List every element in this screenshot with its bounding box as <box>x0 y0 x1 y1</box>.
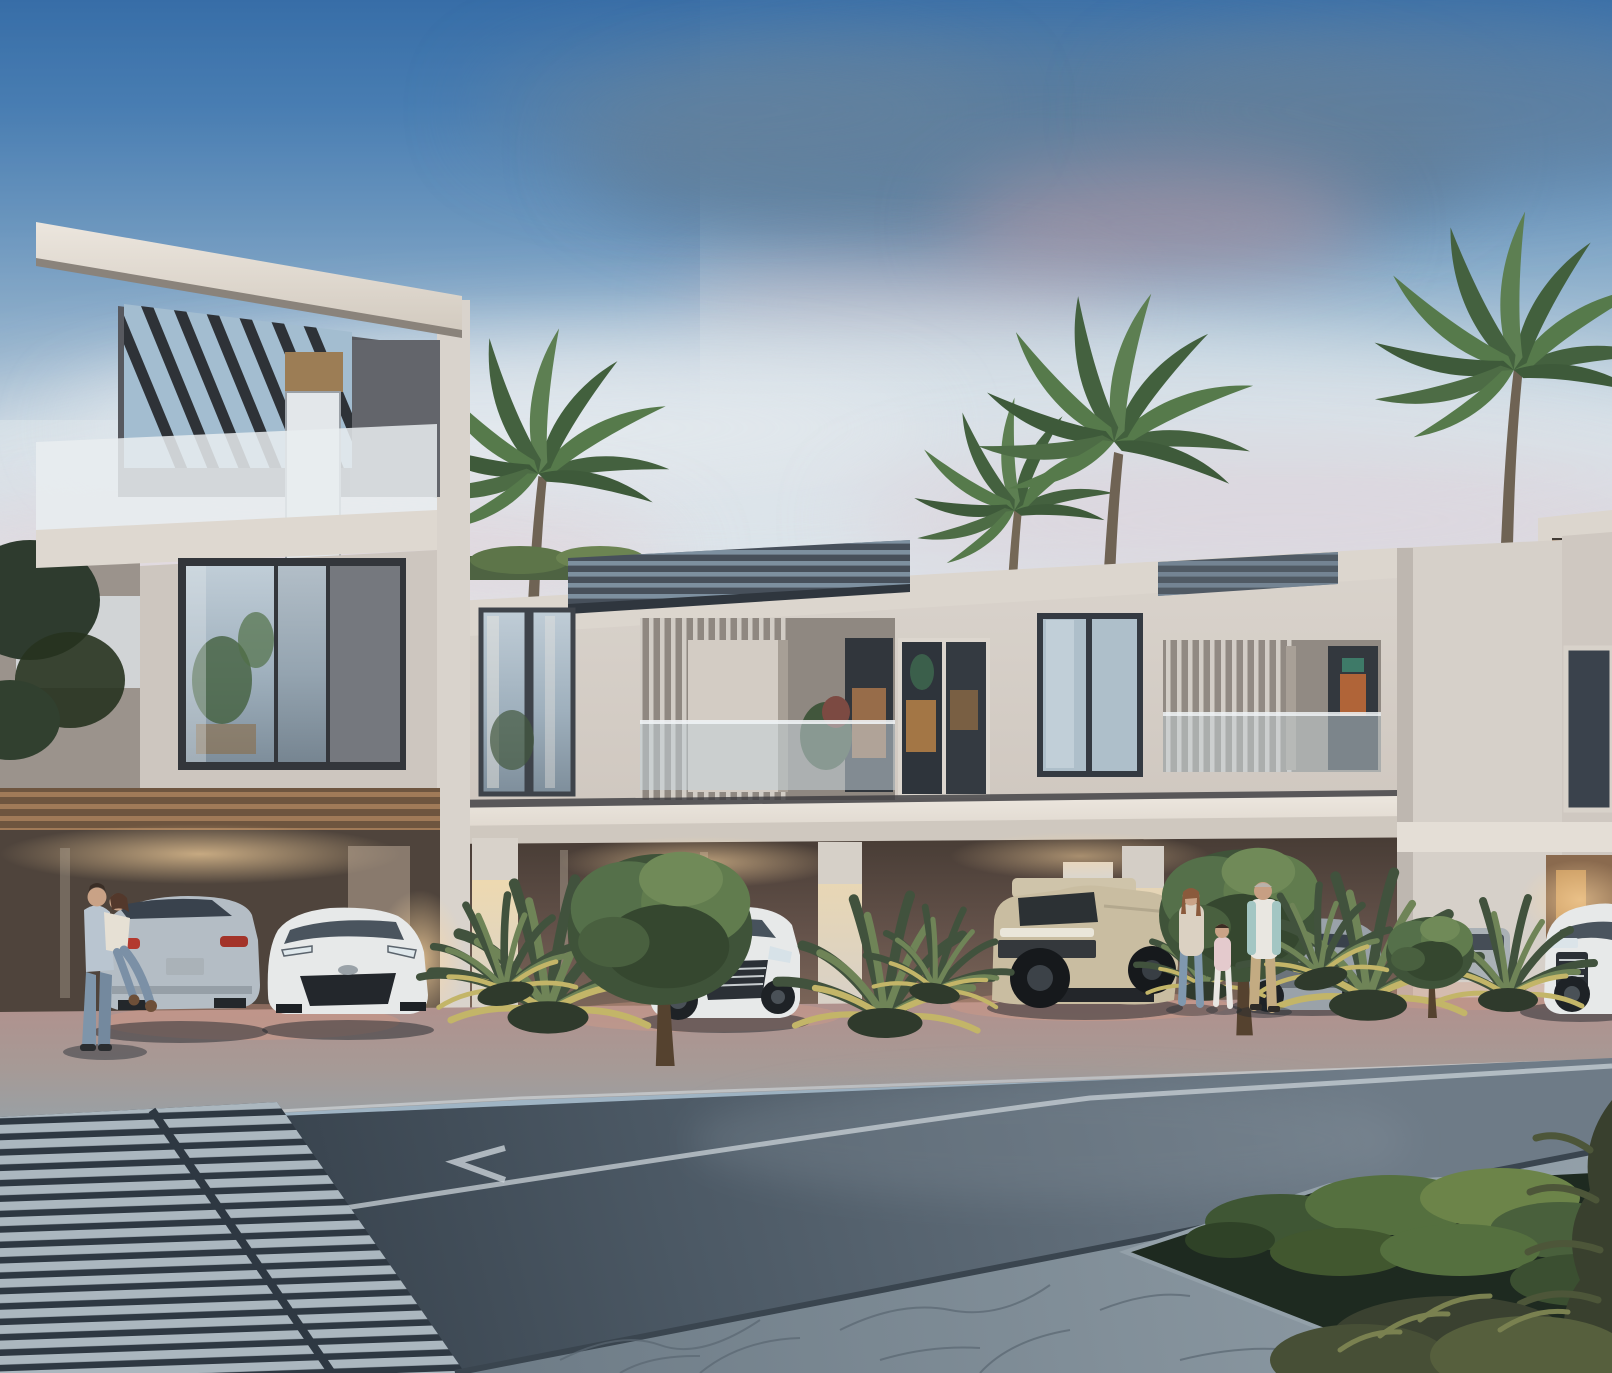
pier-windows <box>481 610 573 794</box>
window-panel <box>330 566 400 762</box>
dark-corner-window <box>1566 648 1612 810</box>
glass-balustrade <box>640 722 895 790</box>
side-courtyard <box>0 540 140 792</box>
hummer-light-bar <box>1000 928 1094 937</box>
tower-window <box>178 558 406 770</box>
grille <box>300 973 396 1006</box>
balcony-unit-d <box>1163 640 1381 772</box>
balcony-unit-a <box>640 618 895 800</box>
window-unit-b <box>898 638 990 798</box>
art-wall <box>1340 674 1366 716</box>
car-hummer-ev <box>987 878 1183 1020</box>
bronze-panel <box>285 352 343 392</box>
windshield <box>1018 892 1098 926</box>
render-canvas <box>0 0 1612 1373</box>
taillight <box>220 936 248 947</box>
license-plate <box>166 958 204 975</box>
glass-balustrade-2 <box>1163 714 1381 772</box>
toyota-badge <box>338 965 358 975</box>
architectural-rendering <box>0 0 1612 1373</box>
